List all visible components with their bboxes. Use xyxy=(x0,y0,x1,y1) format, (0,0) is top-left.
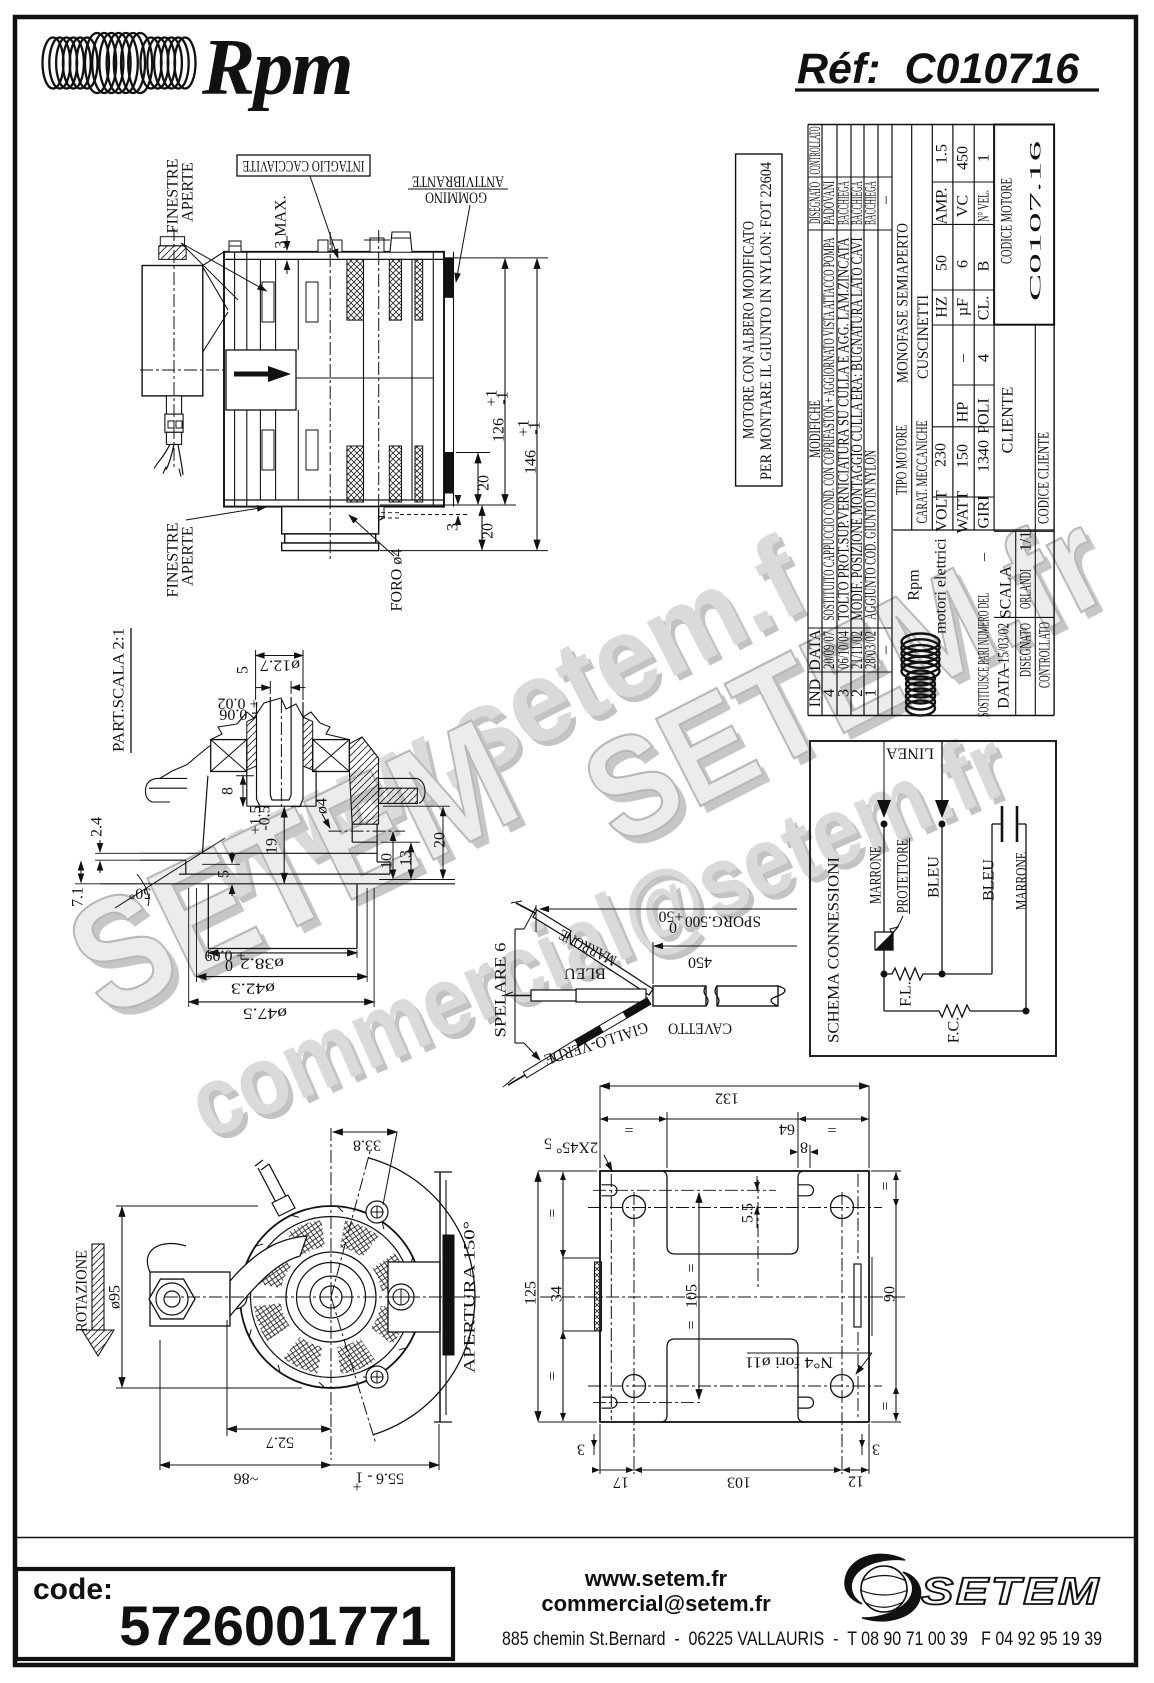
svg-text:TIPO MOTORE: TIPO MOTORE xyxy=(894,425,911,495)
svg-text:BLEU: BLEU xyxy=(926,856,943,898)
svg-text:Rpm: Rpm xyxy=(906,569,923,601)
svg-text:90: 90 xyxy=(882,1286,899,1302)
svg-text:34: 34 xyxy=(549,1286,566,1302)
svg-text:ANTIVIBRANTE: ANTIVIBRANTE xyxy=(412,173,504,190)
svg-text:33.8: 33.8 xyxy=(353,1137,381,1154)
svg-text:132: 132 xyxy=(715,1090,739,1107)
svg-text:2.4: 2.4 xyxy=(89,817,106,837)
svg-text:5726001771: 5726001771 xyxy=(119,1594,430,1657)
svg-text:13: 13 xyxy=(398,850,415,866)
svg-text:BLEU: BLEU xyxy=(564,965,606,982)
svg-text:1/1: 1/1 xyxy=(1018,531,1035,551)
svg-text:126: 126 xyxy=(491,418,508,442)
svg-text:VC: VC xyxy=(955,195,972,217)
svg-text:www.setem.fr: www.setem.fr xyxy=(584,1566,728,1591)
svg-text:103: 103 xyxy=(727,1474,751,1491)
svg-text:VOLT: VOLT xyxy=(934,490,951,531)
svg-text:CONTROLLATO: CONTROLLATO xyxy=(1037,622,1054,688)
svg-text:-1: -1 xyxy=(495,391,512,404)
svg-text:ORLANDI: ORLANDI xyxy=(1018,569,1035,609)
svg-text:APERTE: APERTE xyxy=(180,526,197,585)
svg-text:6: 6 xyxy=(955,260,972,268)
svg-text:5: 5 xyxy=(235,666,252,674)
svg-text:=: = xyxy=(545,1371,562,1380)
svg-text:F.C.: F.C. xyxy=(946,1017,963,1043)
svg-text:125: 125 xyxy=(523,1281,540,1305)
svg-text:105: 105 xyxy=(684,1284,701,1308)
svg-text:µF: µF xyxy=(955,298,972,316)
svg-text:885 chemin St.Bernard - 0622: 885 chemin St.Bernard - 06225 VALLAURIS … xyxy=(502,1628,1102,1650)
svg-text:WATT: WATT xyxy=(955,490,972,533)
svg-text:5: 5 xyxy=(544,1135,552,1152)
svg-text:B: B xyxy=(976,261,993,272)
svg-text:APERTE: APERTE xyxy=(180,162,197,221)
svg-text:CUSCINETTI: CUSCINETTI xyxy=(915,295,932,379)
svg-text:PROTETTORE: PROTETTORE xyxy=(895,839,912,913)
svg-text:PART.SCALA 2:1: PART.SCALA 2:1 xyxy=(111,628,128,752)
svg-text:MARRONE: MARRONE xyxy=(868,846,885,904)
svg-text:50°: 50° xyxy=(129,885,151,902)
svg-text:AGGIUNTO COD. GIUNTO IN NYLON: AGGIUNTO COD. GIUNTO IN NYLON xyxy=(863,450,880,620)
svg-text:–: – xyxy=(877,645,894,655)
svg-text:GIALLO-VERDE: GIALLO-VERDE xyxy=(542,1018,650,1068)
svg-text:MARRONE: MARRONE xyxy=(1014,852,1031,910)
svg-text:DATA: DATA xyxy=(996,667,1013,709)
svg-text:0: 0 xyxy=(225,957,233,974)
svg-text:CONTROLLATO: CONTROLLATO xyxy=(807,127,824,175)
svg-text:ø47.5: ø47.5 xyxy=(243,1005,287,1022)
svg-text:450: 450 xyxy=(955,146,972,170)
svg-text:CODICE CLIENTE: CODICE CLIENTE xyxy=(1036,432,1053,524)
svg-text:BLEU: BLEU xyxy=(981,859,998,901)
svg-text:19: 19 xyxy=(264,838,281,854)
svg-text:=: = xyxy=(878,1181,895,1190)
svg-text:+1.5: +1.5 xyxy=(248,805,265,834)
svg-text:64: 64 xyxy=(779,1121,795,1138)
svg-text:SPORG.500: SPORG.500 xyxy=(685,913,761,930)
svg-text:GOMMINO: GOMMINO xyxy=(425,189,487,206)
svg-text:1: 1 xyxy=(976,154,993,162)
svg-text:POLI: POLI xyxy=(976,398,993,434)
svg-text:50: 50 xyxy=(934,255,951,271)
svg-text:~86: ~86 xyxy=(234,1470,259,1487)
svg-text:55.6: 55.6 xyxy=(376,1470,404,1487)
svg-text:F.L.: F.L. xyxy=(898,981,915,1006)
svg-text:LINEA: LINEA xyxy=(886,745,934,762)
svg-text:-1: -1 xyxy=(527,421,544,434)
svg-text:=: = xyxy=(827,1121,836,1138)
svg-text:230: 230 xyxy=(933,443,950,467)
svg-text:ø38.2: ø38.2 xyxy=(240,955,284,972)
svg-text:PER MONTARE IL GIUNTO IN NYLON: PER MONTARE IL GIUNTO IN NYLON: FOT 2260… xyxy=(758,162,775,480)
svg-text:N°4 fori ø11: N°4 fori ø11 xyxy=(745,1354,833,1371)
svg-text:1340: 1340 xyxy=(976,440,993,472)
svg-text:commercial@setem.fr: commercial@setem.fr xyxy=(541,1591,771,1616)
svg-text:8: 8 xyxy=(220,787,237,795)
svg-text:20: 20 xyxy=(432,832,449,848)
svg-text:HP: HP xyxy=(955,402,972,423)
svg-text:ø12.7: ø12.7 xyxy=(260,657,300,674)
svg-text:52.7: 52.7 xyxy=(266,1434,294,1451)
svg-text:C0107.16: C0107.16 xyxy=(1028,141,1045,301)
svg-text:4: 4 xyxy=(976,354,993,362)
svg-text:motori elettrici: motori elettrici xyxy=(933,538,950,634)
svg-text:1.5: 1.5 xyxy=(934,144,951,164)
svg-text:- 0.06: - 0.06 xyxy=(219,706,256,723)
svg-text:3: 3 xyxy=(872,1441,880,1458)
svg-text:ø4: ø4 xyxy=(314,798,331,814)
svg-text:ø95: ø95 xyxy=(107,1285,124,1309)
svg-text:FORO ø4: FORO ø4 xyxy=(389,549,406,612)
svg-text:N° VEL.: N° VEL. xyxy=(976,190,993,222)
svg-text:ø42.3: ø42.3 xyxy=(231,980,275,997)
svg-text:20: 20 xyxy=(476,475,493,491)
svg-text:–: – xyxy=(955,353,972,363)
svg-text:17: 17 xyxy=(613,1474,629,1491)
svg-text:146: 146 xyxy=(523,450,540,474)
svg-text:INTAGLIO CACCIAVITE: INTAGLIO CACCIAVITE xyxy=(243,157,365,174)
svg-text:12: 12 xyxy=(848,1473,864,1490)
svg-text:Rpm: Rpm xyxy=(201,24,352,112)
svg-text:HZ: HZ xyxy=(934,296,951,317)
svg-text:5: 5 xyxy=(216,870,233,878)
svg-text:0: 0 xyxy=(669,919,677,936)
svg-text:CODICE MOTORE: CODICE MOTORE xyxy=(999,178,1016,264)
svg-text:MOTORE CON ALBERO MODIFICATO: MOTORE CON ALBERO MODIFICATO xyxy=(741,221,758,439)
svg-text:AMP.: AMP. xyxy=(934,188,951,225)
svg-text:2X45°: 2X45° xyxy=(556,1139,598,1156)
svg-text:–15/03/02: –15/03/02 xyxy=(996,623,1013,670)
svg-text:SPELARE 6: SPELARE 6 xyxy=(493,943,510,1038)
svg-text:20: 20 xyxy=(480,523,497,539)
svg-text:SCHEMA CONNESSIONI: SCHEMA CONNESSIONI xyxy=(826,857,843,1043)
svg-text:DISEGNATO: DISEGNATO xyxy=(1018,623,1035,677)
svg-text:5.5: 5.5 xyxy=(740,1203,757,1223)
svg-text:+ 0.09: + 0.09 xyxy=(204,947,245,964)
svg-text:code:: code: xyxy=(33,1573,113,1606)
svg-text:3: 3 xyxy=(577,1441,585,1458)
svg-text:SOSTITUISCE PARI NUMERO DEL: SOSTITUISCE PARI NUMERO DEL xyxy=(976,593,993,717)
svg-text:–: – xyxy=(976,552,993,562)
svg-text:10: 10 xyxy=(379,853,396,869)
svg-text:=: = xyxy=(684,1320,701,1329)
svg-text:=: = xyxy=(545,1208,562,1217)
svg-text:GIRI: GIRI xyxy=(976,496,993,529)
svg-text:SCALA: SCALA xyxy=(998,565,1015,618)
svg-text:–: – xyxy=(877,195,894,205)
svg-text:=: = xyxy=(624,1121,633,1138)
svg-text:ROTAZIONE: ROTAZIONE xyxy=(74,1250,91,1332)
svg-text:3: 3 xyxy=(445,523,462,531)
svg-text:=: = xyxy=(878,1401,895,1410)
svg-text:CAVETTO: CAVETTO xyxy=(668,1020,732,1037)
svg-text:7.1: 7.1 xyxy=(70,887,87,907)
svg-text:1: 1 xyxy=(863,689,880,697)
svg-text:150: 150 xyxy=(955,444,972,468)
svg-text:SETEM: SETEM xyxy=(921,1571,1101,1613)
svg-text:MONOFASE SEMIAPERTO: MONOFASE SEMIAPERTO xyxy=(895,223,912,383)
svg-text:CARAT. MECCANICHE: CARAT. MECCANICHE xyxy=(914,421,931,524)
svg-text:+: + xyxy=(352,1478,361,1495)
svg-text:CLIENTE: CLIENTE xyxy=(1000,387,1017,454)
svg-text:CL.: CL. xyxy=(976,296,993,320)
svg-text:450: 450 xyxy=(688,954,712,971)
svg-text:Réf: C010716: Réf: C010716 xyxy=(797,45,1080,93)
svg-text:=: = xyxy=(684,1263,701,1272)
svg-text:8: 8 xyxy=(800,1139,808,1156)
